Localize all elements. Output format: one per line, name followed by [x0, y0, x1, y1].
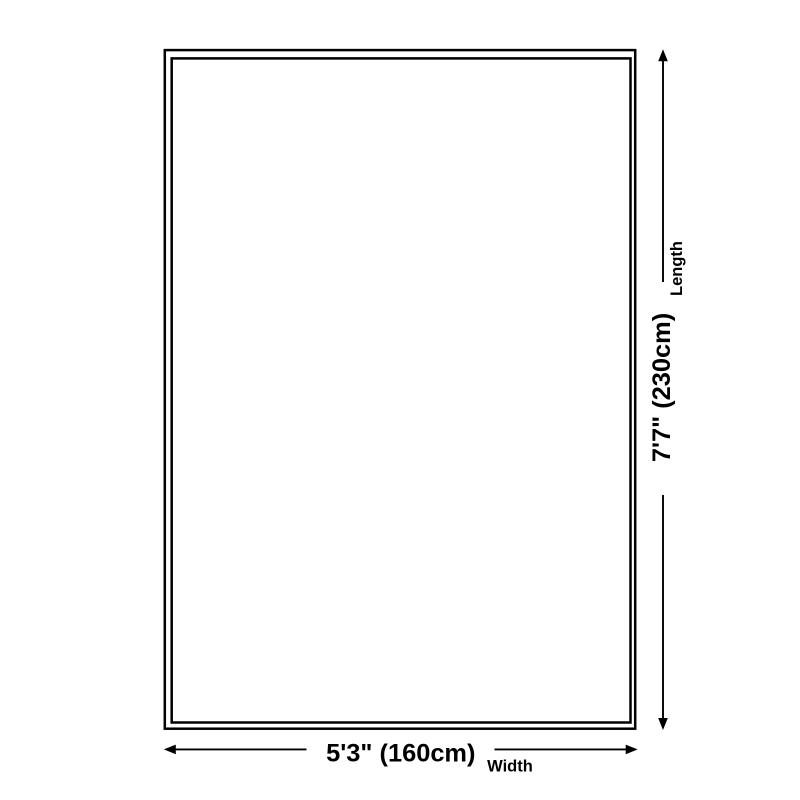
- svg-text:Width: Width: [487, 758, 533, 776]
- svg-text:7'7" (230cm): 7'7" (230cm): [648, 313, 676, 462]
- svg-text:5'3" (160cm): 5'3" (160cm): [326, 740, 475, 768]
- svg-text:Length: Length: [668, 241, 686, 296]
